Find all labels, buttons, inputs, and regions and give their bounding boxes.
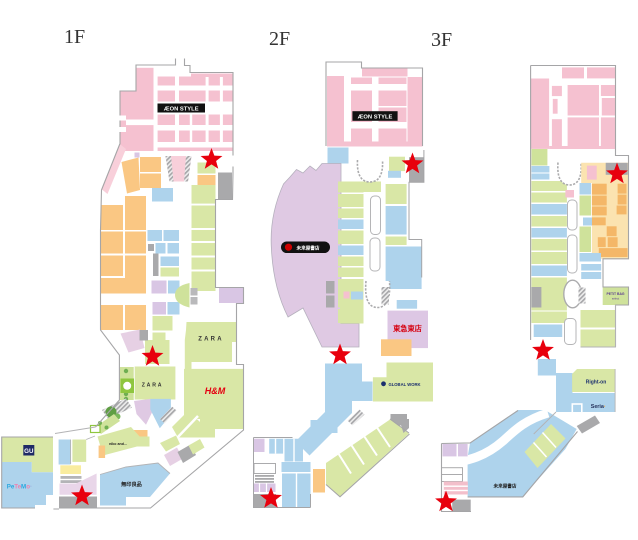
svg-text:ZARA: ZARA	[198, 337, 223, 343]
svg-text:ZARA: ZARA	[142, 383, 164, 389]
svg-text:PETIT BAG: PETIT BAG	[606, 292, 624, 296]
svg-text:未来屋書店: 未来屋書店	[296, 245, 320, 252]
svg-text:ÆON STYLE: ÆON STYLE	[164, 106, 199, 112]
svg-text:無印良品: 無印良品	[121, 480, 142, 488]
svg-text:GU: GU	[24, 448, 34, 455]
svg-text:GLOBAL WORK: GLOBAL WORK	[388, 382, 420, 387]
svg-text:niko and...: niko and...	[109, 442, 127, 446]
svg-text:未来屋書店: 未来屋書店	[493, 482, 517, 489]
svg-text:Right-on: Right-on	[586, 380, 607, 386]
svg-text:東急東店: 東急東店	[392, 324, 422, 333]
svg-text:ÆON STYLE: ÆON STYLE	[358, 114, 393, 120]
svg-text:PeTeMo°: PeTeMo°	[7, 484, 32, 491]
svg-text:H&M: H&M	[205, 386, 226, 396]
svg-text:Seria*: Seria*	[591, 404, 606, 410]
svg-text:select: select	[612, 297, 620, 301]
